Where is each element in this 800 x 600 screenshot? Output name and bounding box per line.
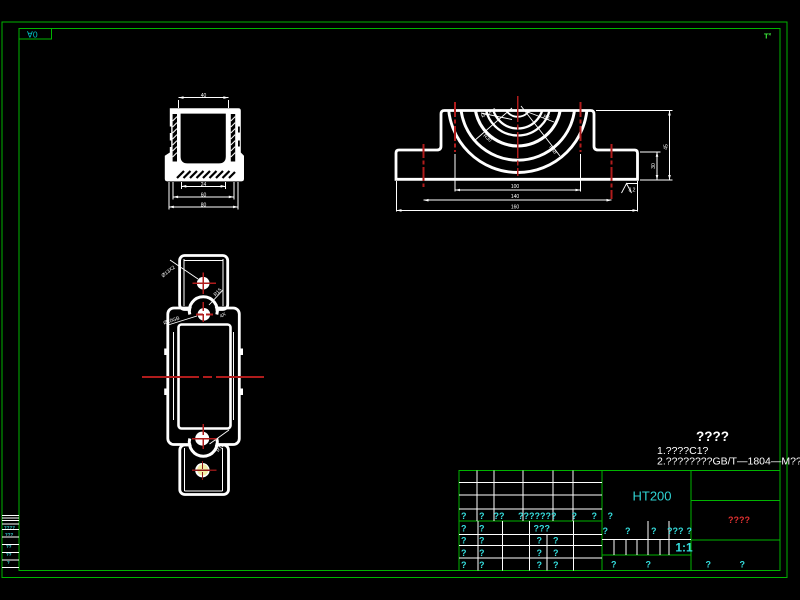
svg-text:140: 140 [511,194,520,200]
svg-text:?: ? [592,511,598,521]
svg-text:?: ? [651,526,657,536]
svg-text:?: ? [603,526,609,536]
svg-text:HT200: HT200 [632,489,671,504]
svg-text:30: 30 [651,163,657,169]
svg-text:?: ? [740,560,746,570]
svg-text:T˟: T˟ [764,32,772,41]
svg-text:?: ? [646,560,652,570]
svg-text:???????: ??????? [518,511,556,521]
svg-text:?: ? [479,560,485,570]
svg-text:??: ?? [6,544,12,549]
svg-text:?: ? [461,524,467,534]
svg-text:80: 80 [201,202,207,208]
svg-text:100: 100 [511,184,520,190]
svg-text:???: ??? [5,532,13,537]
svg-text:?: ? [625,526,631,536]
svg-text:2.????????GB/T—1804—M????: 2.????????GB/T—1804—M???? [657,456,800,468]
svg-text:45: 45 [664,144,670,150]
svg-text:40: 40 [201,93,207,99]
svg-text:??: ?? [494,511,505,521]
svg-text:?: ? [537,536,543,546]
svg-text:?: ? [537,560,543,570]
svg-text:?: ? [7,560,10,565]
svg-text:??: ?? [6,552,12,557]
svg-text:1:1: 1:1 [675,541,693,555]
svg-text:?: ? [479,511,485,521]
svg-text:????: ???? [728,515,750,525]
svg-text:?: ? [553,536,559,546]
svg-text:?: ? [479,536,485,546]
svg-text:?: ? [461,511,467,521]
svg-text:?: ? [553,560,559,570]
svg-text:?: ? [479,548,485,558]
svg-text:160: 160 [511,204,520,210]
svg-text:3.2: 3.2 [629,188,636,194]
svg-text:?: ? [479,524,485,534]
svg-text:???: ??? [667,526,684,536]
svg-text:?: ? [611,560,617,570]
svg-text:?: ? [461,548,467,558]
svg-text:?: ? [461,536,467,546]
svg-text:∀0: ∀0 [27,30,38,40]
svg-text:60: 60 [201,192,207,198]
svg-text:?: ? [608,511,614,521]
svg-text:?: ? [706,560,712,570]
svg-text:????: ???? [4,525,15,530]
svg-text:?: ? [461,560,467,570]
svg-text:?: ? [537,548,543,558]
svg-text:?: ? [687,526,693,536]
svg-text:?: ? [572,511,578,521]
svg-text:???: ??? [534,524,551,534]
svg-text:????: ???? [696,429,729,444]
svg-text:?: ? [553,548,559,558]
svg-text:24: 24 [201,182,207,188]
